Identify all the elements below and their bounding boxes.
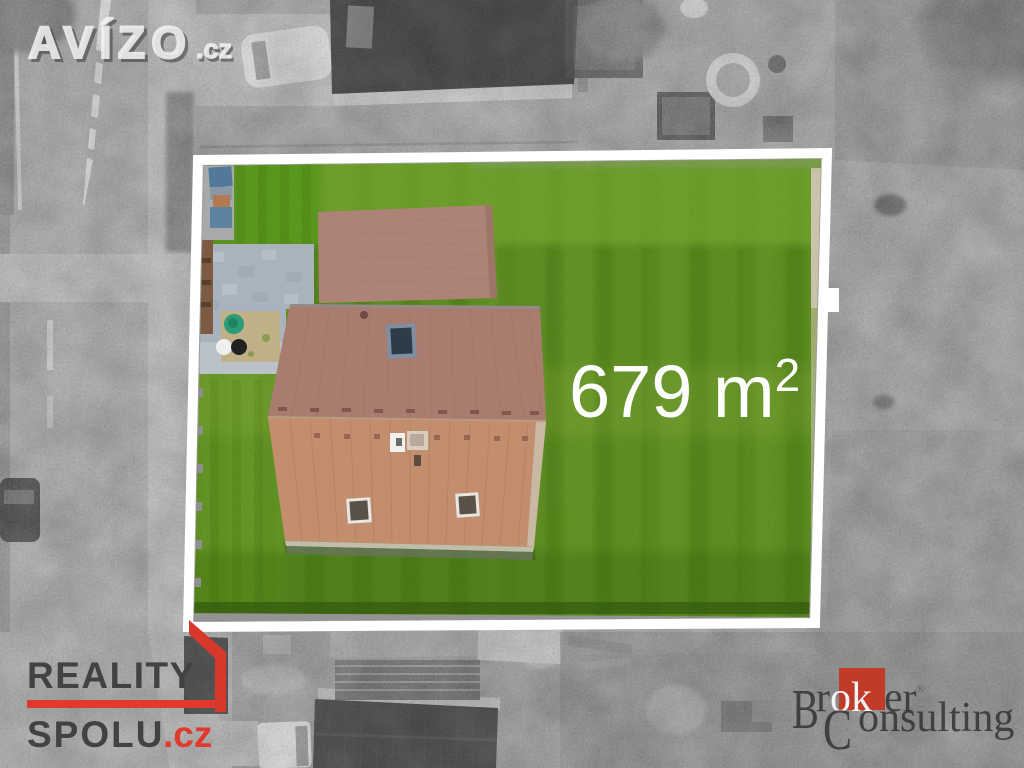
svg-text:C: C	[823, 698, 852, 762]
svg-text:SPOLU: SPOLU	[27, 714, 164, 755]
svg-text:®: ®	[916, 683, 924, 695]
svg-text:AVÍZO: AVÍZO	[28, 17, 192, 68]
svg-text:679 m2: 679 m2	[569, 349, 800, 433]
svg-text:.cz: .cz	[196, 34, 232, 64]
svg-text:.cz: .cz	[163, 714, 212, 755]
svg-text:REALITY: REALITY	[27, 655, 196, 696]
svg-text:B: B	[792, 679, 819, 741]
svg-text:onsulting: onsulting	[858, 695, 1014, 741]
